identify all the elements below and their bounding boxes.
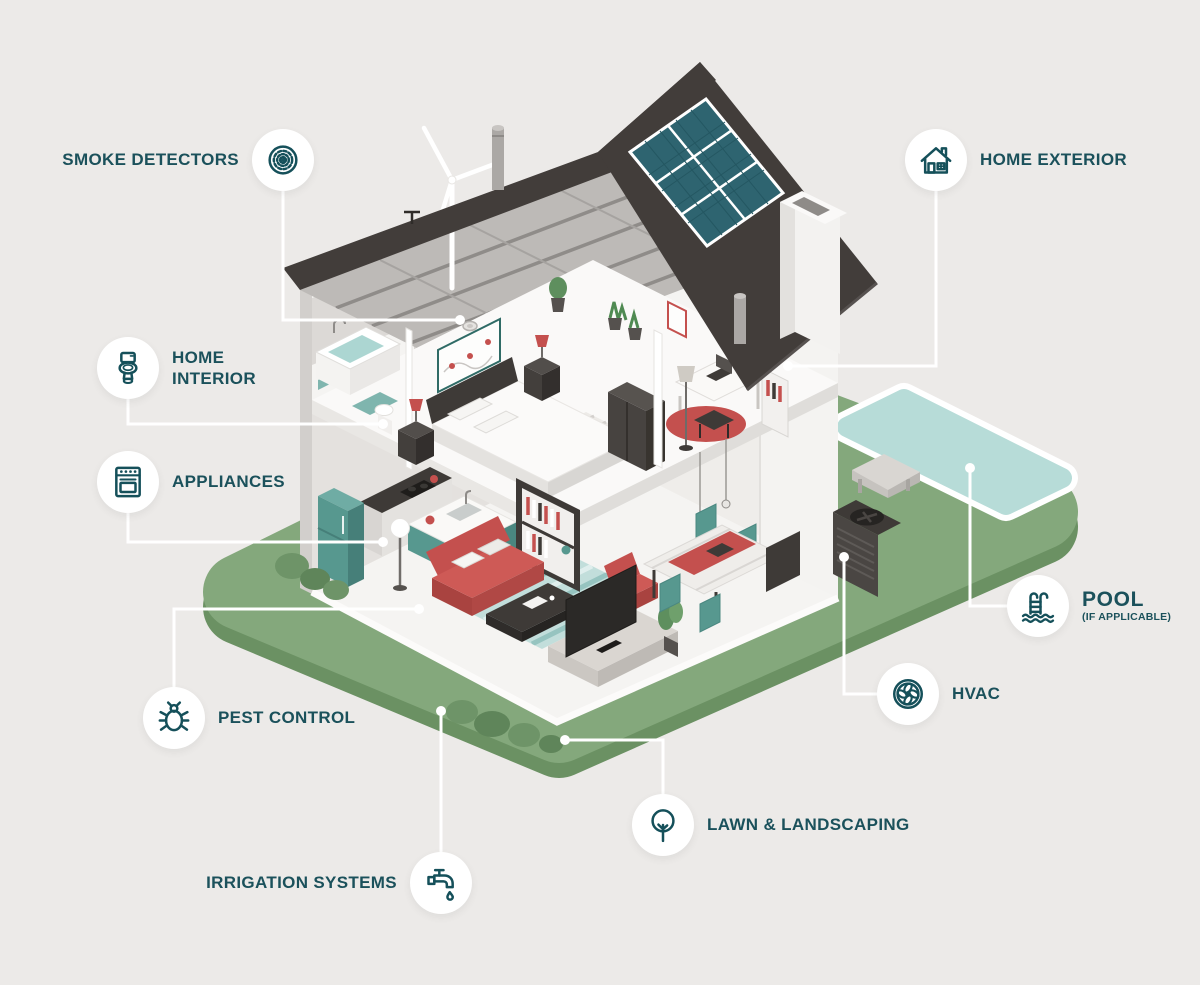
pool-ladder-icon bbox=[1018, 586, 1058, 626]
faucet-icon bbox=[421, 863, 461, 903]
tree-icon bbox=[643, 805, 683, 845]
smoke-detectors-bubble bbox=[252, 129, 314, 191]
infographic: SMOKE DETECTORS HOME EXTERIOR bbox=[0, 0, 1200, 985]
callout-pest-control: PEST CONTROL bbox=[143, 687, 355, 749]
irrigation-systems-bubble bbox=[410, 852, 472, 914]
smoke-detectors-label: SMOKE DETECTORS bbox=[62, 149, 239, 170]
toilet-icon bbox=[108, 348, 148, 388]
callout-home-exterior: HOME EXTERIOR bbox=[905, 129, 1127, 191]
pest-control-bubble bbox=[143, 687, 205, 749]
irrigation-systems-label: IRRIGATION SYSTEMS bbox=[206, 872, 397, 893]
callout-hvac: HVAC bbox=[877, 663, 1000, 725]
fan-icon bbox=[888, 674, 928, 714]
oven-icon bbox=[108, 462, 148, 502]
home-exterior-bubble bbox=[905, 129, 967, 191]
home-interior-bubble bbox=[97, 337, 159, 399]
house-icon bbox=[916, 140, 956, 180]
callout-smoke-detectors: SMOKE DETECTORS bbox=[62, 129, 314, 191]
chimney bbox=[780, 191, 847, 354]
pest-control-label: PEST CONTROL bbox=[218, 707, 355, 728]
smoke-detector-device bbox=[463, 322, 477, 331]
home-exterior-label: HOME EXTERIOR bbox=[980, 149, 1127, 170]
appliances-bubble bbox=[97, 451, 159, 513]
hvac-label: HVAC bbox=[952, 683, 1000, 704]
smoke-detector-icon bbox=[263, 140, 303, 180]
callout-irrigation-systems: IRRIGATION SYSTEMS bbox=[206, 852, 472, 914]
lawn-landscaping-bubble bbox=[632, 794, 694, 856]
hvac-bubble bbox=[877, 663, 939, 725]
callout-pool: POOL (IF APPLICABLE) bbox=[1007, 575, 1171, 637]
callout-lawn-landscaping: LAWN & LANDSCAPING bbox=[632, 794, 910, 856]
callout-home-interior: HOME INTERIOR bbox=[97, 337, 272, 399]
home-interior-label: HOME INTERIOR bbox=[172, 347, 272, 390]
callout-appliances: APPLIANCES bbox=[97, 451, 285, 513]
lawn-landscaping-label: LAWN & LANDSCAPING bbox=[707, 814, 910, 835]
bug-icon bbox=[154, 698, 194, 738]
pool-bubble bbox=[1007, 575, 1069, 637]
pool-label: POOL (IF APPLICABLE) bbox=[1082, 589, 1171, 622]
appliances-label: APPLIANCES bbox=[172, 471, 285, 492]
